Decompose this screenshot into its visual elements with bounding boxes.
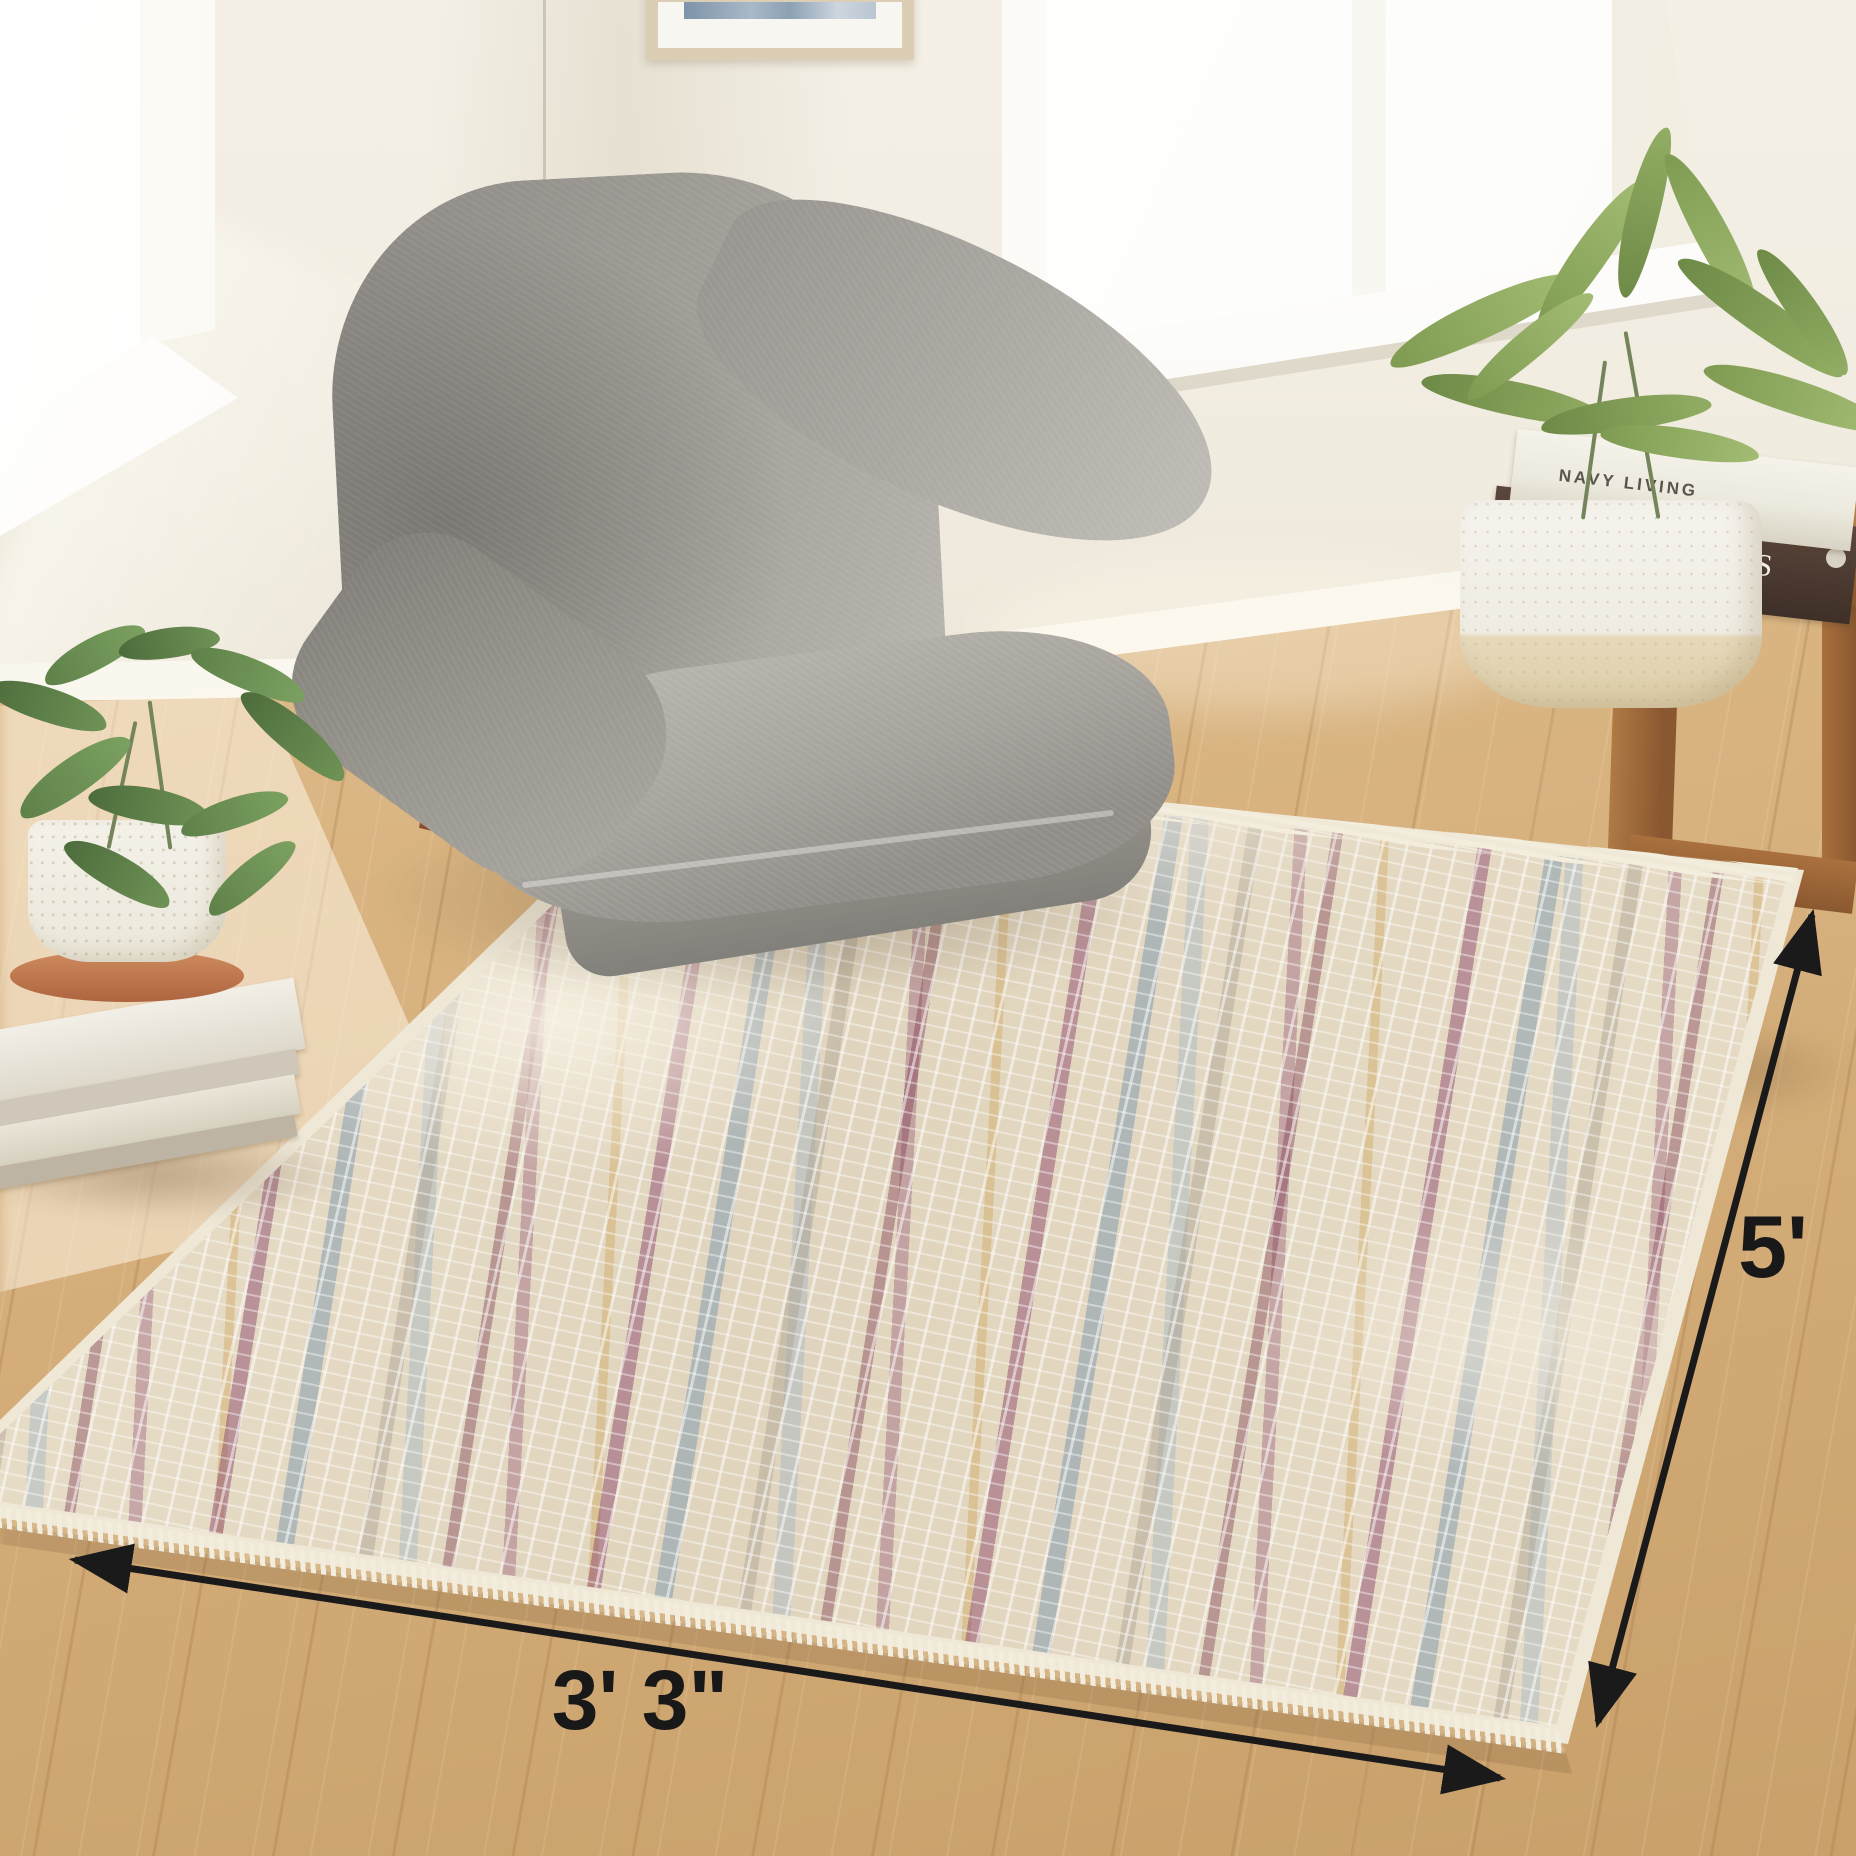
width-dimension-label: 3' 3" bbox=[430, 1652, 850, 1749]
table-plant-pot bbox=[1460, 500, 1762, 708]
framed-artwork bbox=[646, 0, 914, 60]
product-photo-stage: ORDUS NAVY LIVING bbox=[0, 0, 1856, 1856]
artwork-image bbox=[684, 2, 876, 19]
white-book-spine-text: NAVY LIVING bbox=[1558, 466, 1699, 502]
length-dimension-label: 5' bbox=[1688, 1196, 1856, 1298]
